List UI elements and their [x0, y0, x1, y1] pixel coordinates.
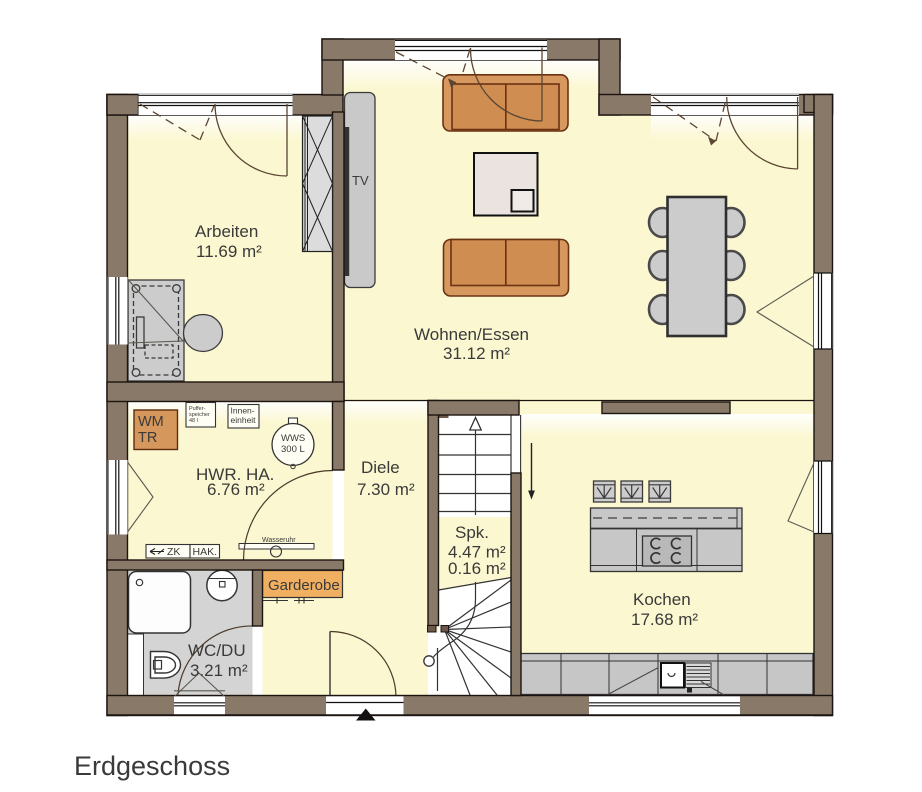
- svg-text:WWS: WWS: [281, 433, 305, 444]
- svg-text:Garderobe: Garderobe: [268, 577, 340, 594]
- svg-text:7.30 m²: 7.30 m²: [357, 480, 415, 499]
- svg-text:Innen-: Innen-: [231, 406, 255, 416]
- svg-text:TR: TR: [138, 430, 157, 446]
- svg-text:300 L: 300 L: [281, 444, 305, 455]
- svg-text:WC/DU: WC/DU: [188, 641, 246, 660]
- svg-text:WM: WM: [138, 414, 164, 430]
- svg-text:Diele: Diele: [361, 458, 400, 477]
- svg-text:0.16 m²: 0.16 m²: [448, 559, 506, 578]
- svg-text:Wohnen/Essen: Wohnen/Essen: [414, 325, 529, 344]
- svg-text:Kochen: Kochen: [633, 590, 691, 609]
- svg-text:6.76 m²: 6.76 m²: [207, 480, 265, 499]
- svg-text:11.69 m²: 11.69 m²: [196, 242, 262, 261]
- svg-text:17.68 m²: 17.68 m²: [631, 610, 698, 629]
- svg-text:Spk.: Spk.: [455, 523, 489, 542]
- svg-text:einheit: einheit: [231, 415, 257, 425]
- svg-text:TV: TV: [352, 173, 369, 188]
- svg-text:3.21 m²: 3.21 m²: [190, 661, 248, 680]
- svg-text:ZK: ZK: [167, 546, 180, 558]
- svg-text:Wasseruhr: Wasseruhr: [262, 537, 296, 544]
- svg-text:Arbeiten: Arbeiten: [195, 222, 258, 241]
- svg-text:48 l: 48 l: [189, 418, 198, 424]
- svg-text:31.12 m²: 31.12 m²: [443, 344, 510, 363]
- svg-text:Erdgeschoss: Erdgeschoss: [74, 751, 230, 781]
- svg-text:HAK.: HAK.: [193, 546, 218, 558]
